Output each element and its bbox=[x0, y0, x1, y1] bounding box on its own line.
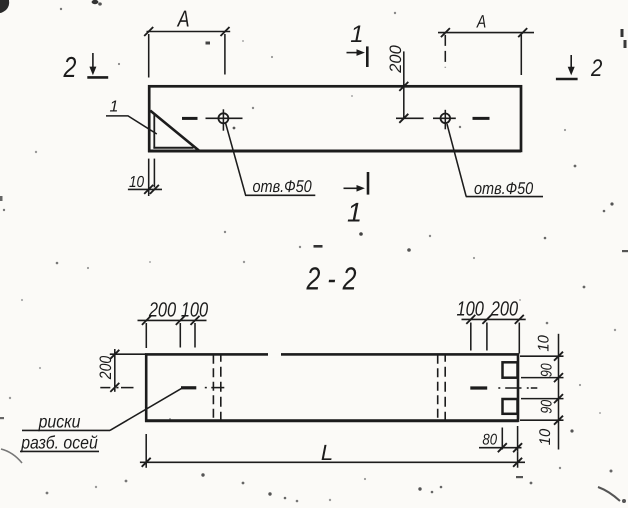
svg-text:2 - 2: 2 - 2 bbox=[306, 261, 357, 297]
svg-text:отв.Ф50: отв.Ф50 bbox=[474, 179, 534, 198]
svg-text:10: 10 bbox=[536, 335, 553, 352]
svg-text:90: 90 bbox=[539, 363, 556, 377]
svg-text:100: 100 bbox=[457, 297, 485, 320]
svg-text:200: 200 bbox=[490, 297, 519, 320]
svg-text:200: 200 bbox=[387, 44, 405, 73]
svg-text:10: 10 bbox=[129, 174, 144, 191]
svg-text:100: 100 bbox=[181, 298, 209, 321]
svg-text:1: 1 bbox=[350, 21, 363, 48]
svg-text:A: A bbox=[476, 11, 486, 31]
svg-text:2: 2 bbox=[590, 55, 602, 82]
svg-text:разб. осей: разб. осей bbox=[20, 432, 97, 452]
svg-text:80: 80 bbox=[482, 431, 497, 448]
svg-text:A: A bbox=[176, 6, 190, 32]
svg-text:риски: риски bbox=[38, 411, 81, 431]
svg-text:2: 2 bbox=[63, 52, 77, 84]
svg-text:отв.Ф50: отв.Ф50 bbox=[253, 177, 313, 196]
svg-text:200: 200 bbox=[148, 298, 177, 321]
svg-text:10: 10 bbox=[537, 428, 554, 445]
svg-text:1: 1 bbox=[347, 197, 362, 227]
svg-text:L: L bbox=[321, 440, 333, 465]
svg-text:1: 1 bbox=[110, 99, 119, 116]
svg-text:90: 90 bbox=[539, 400, 556, 414]
svg-text:200: 200 bbox=[97, 355, 115, 380]
